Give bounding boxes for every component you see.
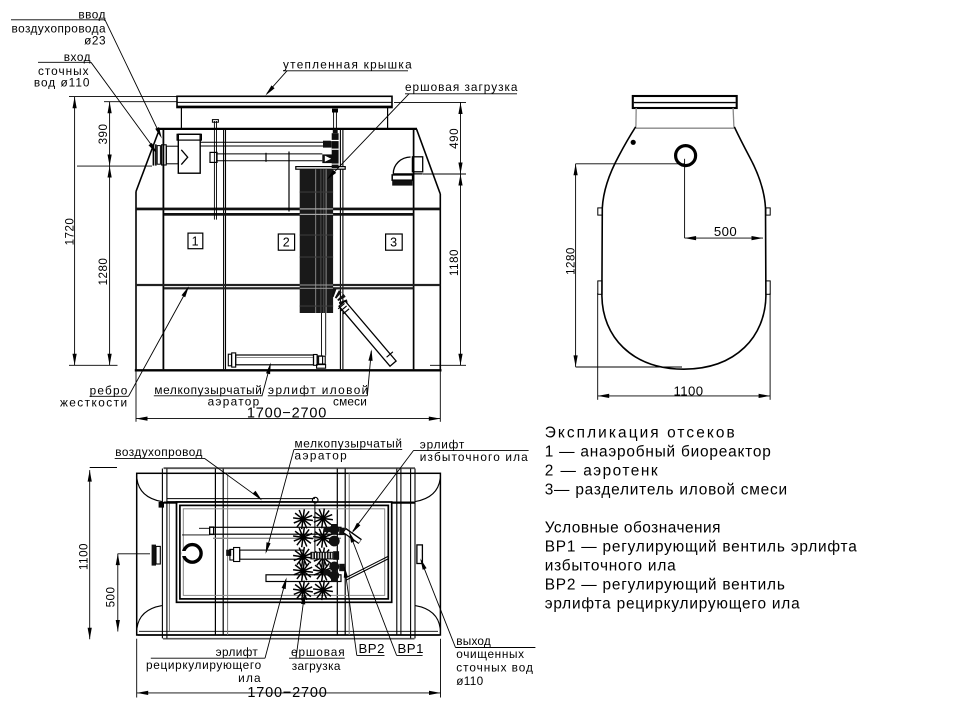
svg-text:аэратор: аэратор [295, 448, 349, 462]
svg-text:загрузка: загрузка [292, 659, 341, 673]
svg-text:избыточного ила: избыточного ила [420, 450, 529, 464]
svg-text:эрлифта рециркулирующего ила: эрлифта рециркулирующего ила [545, 596, 801, 613]
svg-text:ВР1: ВР1 [398, 641, 424, 656]
svg-text:ø23: ø23 [84, 33, 106, 47]
svg-text:смеси: смеси [333, 395, 367, 409]
svg-text:1100: 1100 [78, 543, 91, 570]
svg-text:2 — аэротенк: 2 — аэротенк [545, 463, 659, 480]
svg-text:сточных вод: сточных вод [456, 661, 534, 675]
svg-text:вод ø110: вод ø110 [34, 75, 91, 89]
svg-text:ершовая: ершовая [291, 645, 346, 659]
svg-text:очищенных: очищенных [456, 647, 524, 661]
svg-text:1720: 1720 [64, 218, 77, 246]
svg-text:1700−2700: 1700−2700 [247, 685, 327, 701]
svg-text:500: 500 [105, 587, 118, 608]
svg-text:ввод: ввод [78, 7, 106, 21]
svg-text:Экспликация отсеков: Экспликация отсеков [545, 425, 737, 442]
svg-text:ø110: ø110 [456, 674, 483, 688]
svg-text:1280: 1280 [97, 258, 110, 286]
svg-text:2: 2 [283, 236, 290, 250]
svg-text:жесткости: жесткости [60, 395, 129, 409]
svg-text:1: 1 [192, 235, 199, 249]
svg-text:ила: ила [238, 671, 262, 685]
svg-text:1100: 1100 [674, 383, 704, 398]
svg-text:утепленная крышка: утепленная крышка [283, 57, 413, 71]
svg-text:1 — анаэробный биореактор: 1 — анаэробный биореактор [545, 444, 772, 461]
svg-text:ВР1 — регулирующий вентиль эр: ВР1 — регулирующий вентиль эрлифта [545, 539, 858, 556]
svg-text:1180: 1180 [448, 249, 461, 276]
svg-text:490: 490 [448, 128, 461, 149]
svg-text:избыточного ила: избыточного ила [545, 558, 677, 575]
svg-text:аэратор: аэратор [208, 395, 261, 409]
svg-text:ершовая загрузка: ершовая загрузка [405, 80, 519, 94]
svg-text:воздухопровод: воздухопровод [115, 445, 203, 459]
svg-text:3: 3 [390, 236, 397, 250]
svg-text:ВР2 — регулирующий вентиль: ВР2 — регулирующий вентиль [545, 577, 786, 594]
svg-text:390: 390 [97, 124, 110, 145]
svg-text:1280: 1280 [565, 247, 578, 275]
svg-text:ВР2: ВР2 [359, 641, 385, 656]
svg-text:Условные обозначения: Условные обозначения [545, 520, 721, 537]
svg-text:500: 500 [714, 224, 737, 239]
svg-text:3— разделитель иловой смеси: 3— разделитель иловой смеси [545, 482, 788, 499]
svg-text:выход: выход [456, 634, 491, 648]
svg-text:рециркулирующего: рециркулирующего [146, 658, 262, 672]
